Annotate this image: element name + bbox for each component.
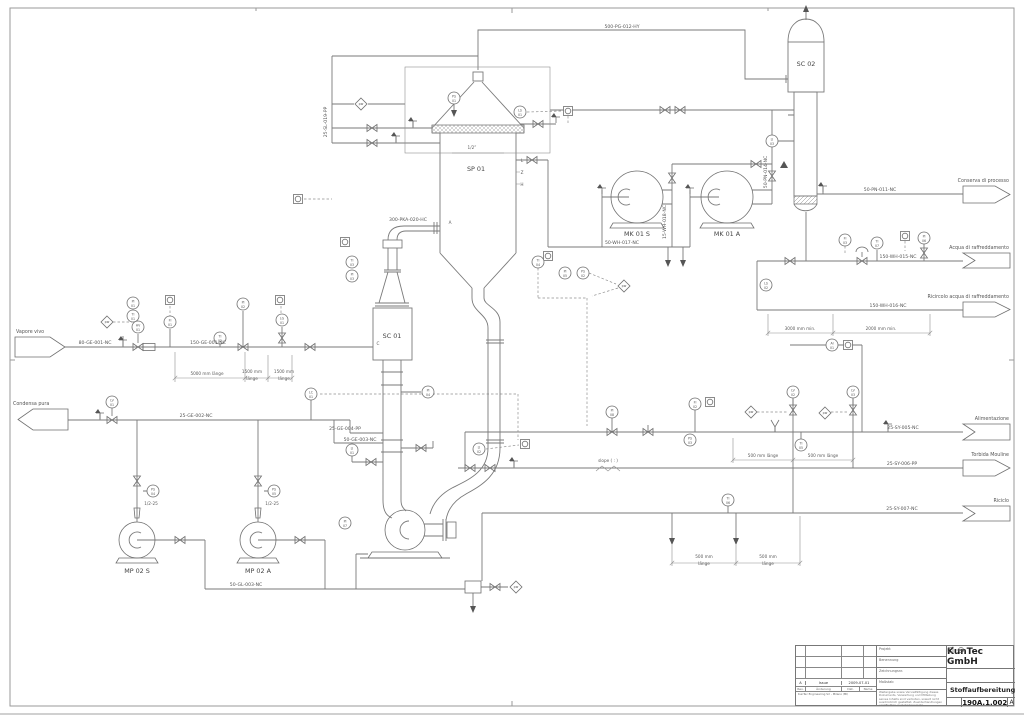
instrument-tag: PI xyxy=(344,520,347,524)
valves xyxy=(107,107,928,591)
drawing-title: Stoffaufbereitung xyxy=(947,683,1015,698)
flow-arrow-down-icon xyxy=(669,538,675,545)
pid-canvas: Vapore vivoCondensa puraConserva di proc… xyxy=(0,0,1024,724)
equipment-label: MP 02 S xyxy=(124,567,150,575)
instrument-tag: pw xyxy=(749,410,754,414)
rev-desc: Issue xyxy=(806,681,842,685)
instrument-tag: 04 xyxy=(536,263,540,267)
instrument-tag: 03 xyxy=(851,393,855,397)
vent-tee-icon xyxy=(409,121,417,127)
flag-condensa-pura xyxy=(18,409,68,430)
instrument-tag: PS xyxy=(688,437,692,441)
instrument-tag: 03 xyxy=(350,277,354,281)
flow-arrow-down-icon xyxy=(451,110,457,117)
note-label: H xyxy=(520,182,523,187)
note-label: Z xyxy=(521,170,524,175)
instrument-tag: 01 xyxy=(309,395,313,399)
instrument-tag: 04 xyxy=(426,393,430,397)
valve-actuator-icon xyxy=(112,247,868,416)
instrument-tag: 03 xyxy=(770,142,774,146)
instrument-tag: pw xyxy=(622,284,627,288)
instrument-tag: FI xyxy=(844,237,847,241)
sp01-mesh-screen xyxy=(432,125,524,133)
instrument-tag: pw xyxy=(105,320,110,324)
vent-flag-icon xyxy=(391,132,397,136)
equipment-label: MK 01 A xyxy=(714,230,741,238)
instrument-tag: 05 xyxy=(799,446,803,450)
pipe-label: 50-PN-014-NC xyxy=(763,156,769,188)
note-label: 1/2” xyxy=(468,145,477,150)
pipe-label: 300-PKA-020-HC xyxy=(389,217,427,223)
dimension-label: 1500 mm xyxy=(242,369,262,374)
rev-letter: A xyxy=(796,681,806,685)
offpage-flags: Vapore vivoCondensa puraConserva di proc… xyxy=(13,178,1010,521)
vent-flag-icon xyxy=(509,457,515,461)
instrument-tag: 02 xyxy=(581,274,585,278)
vent-flag-icon xyxy=(95,409,101,413)
drawing-frame xyxy=(0,8,1024,714)
pipe-label: 50-WH-017-NC xyxy=(605,240,639,246)
dimension-label: 500 mm xyxy=(759,554,776,559)
instrument-tag: PS xyxy=(151,488,155,492)
vent-tee-icon xyxy=(598,188,606,194)
instrument-tag: TI xyxy=(218,335,222,339)
instrument-tag: TI xyxy=(799,442,803,446)
instrument-tag: 07 xyxy=(875,244,879,248)
pipe-label: 25-SY-006-PP xyxy=(887,461,918,467)
vent-flag-icon xyxy=(818,182,824,186)
equipment-label: MK 01 S xyxy=(624,230,650,238)
flow-arrow-down-icon xyxy=(680,260,686,267)
instrument-tag: PI xyxy=(923,235,926,239)
pipe-label: 15-WH-018-NC xyxy=(662,205,668,239)
circulation-pump xyxy=(385,510,425,550)
pipe-label: 25-SL-019-PP xyxy=(323,107,329,138)
flag-label: Acqua di raffreddamento xyxy=(949,245,1009,251)
instrument-tag: TI xyxy=(350,259,354,263)
pipe-label: 25-SY-005-NC xyxy=(887,425,918,431)
instrument-tag: PI xyxy=(132,300,135,304)
instrument-tag: PS xyxy=(272,488,276,492)
flow-arrow-down-icon xyxy=(665,260,671,267)
instrument-tag: PS xyxy=(452,95,456,99)
dimension-label: 500 mm länge xyxy=(808,453,839,458)
instrument-tag: pw xyxy=(514,585,519,589)
pipe-label: 150-GE-001-NC xyxy=(190,340,226,346)
note-label: A xyxy=(449,220,452,225)
revision-table: A Issue 2009-07-01 Rev. Änderung Dat. Na… xyxy=(796,646,876,705)
revision-row: A Issue 2009-07-01 xyxy=(796,679,876,687)
dimension-label: länge xyxy=(246,376,258,381)
vent-tee-icon xyxy=(510,461,518,467)
note-label: C xyxy=(377,341,380,346)
flag-alimentazione xyxy=(963,424,1010,440)
instrument-tag: TI xyxy=(875,240,879,244)
instrument-tag: FI xyxy=(694,401,697,405)
flag-conserva-di-processo xyxy=(963,186,1010,203)
instrument-tag: 06 xyxy=(726,501,730,505)
instrument-tag: TI xyxy=(536,259,540,263)
pipe-label: 50-PN-011-NC xyxy=(864,187,896,193)
equipment-outlines xyxy=(116,19,824,563)
vent-tee-icon xyxy=(819,186,827,192)
equipment-label: MP 02 A xyxy=(245,567,272,575)
rev-head-name: Name xyxy=(860,687,876,691)
pipe-label: 25-SY-007-NC xyxy=(886,506,917,512)
instrument-tag: 04 xyxy=(151,492,155,496)
field-zeichnungsnr: Zeichnungsnr. xyxy=(877,668,946,679)
proprietary-note: Weitergabe sowie Vervielfältigung dieses… xyxy=(877,690,946,707)
dimension-label: 2000 mm min. xyxy=(866,326,897,331)
instrument-tag: 01 xyxy=(110,403,114,407)
vent-flag-icon xyxy=(883,420,889,424)
vent-flag-icon xyxy=(551,113,557,117)
instrument-tag: 03 xyxy=(350,263,354,267)
vent-tee-icon xyxy=(96,413,104,419)
signal-lines xyxy=(113,111,905,449)
process-piping xyxy=(65,10,963,606)
rev-head-date: Dat. xyxy=(842,687,860,691)
equipment-label: SP 01 xyxy=(467,165,485,173)
vessel-sc02-column xyxy=(794,92,817,196)
instrument-tag: 07 xyxy=(343,524,347,528)
drawing-revision: A xyxy=(1007,698,1015,707)
note-label: slope ( : ) xyxy=(598,458,618,463)
rev-date: 2009-07-01 xyxy=(842,681,876,685)
flag-label: Riciclo xyxy=(993,498,1009,504)
instrument-tag: PI xyxy=(611,409,614,413)
pipe-label: 25-GE-004-PP xyxy=(329,426,361,432)
projection-symbol-icon xyxy=(947,698,962,707)
flow-arrow-down-icon xyxy=(733,538,739,545)
pipe-label: 50-GL-003-NC xyxy=(230,582,262,588)
instrument-tag: pw xyxy=(823,411,828,415)
drawing-number: 190A.1.002 xyxy=(962,698,1007,707)
vent-tee-icon xyxy=(686,188,694,194)
instrument-tag: PS xyxy=(581,270,585,274)
instrument-tag: 08 xyxy=(610,413,614,417)
instrument-tag: 01 xyxy=(518,113,522,117)
instrument-tag: LS xyxy=(518,109,522,113)
title-block-footer: KunTec Engineering Srl - Milano (MI) xyxy=(796,692,876,696)
instrument-tag: 01 xyxy=(350,451,354,455)
title-block-fields: Projekt Benennung Zeichnungsnr. Maßstab … xyxy=(876,646,946,705)
instrument-tag: 05 xyxy=(272,492,276,496)
dimension-label: 5000 mm länge xyxy=(190,371,224,376)
dimension-label: länge xyxy=(278,376,290,381)
vent-tee-icon xyxy=(392,136,400,142)
instrument-tag: PI xyxy=(242,301,245,305)
rev-head-change: Änderung xyxy=(806,687,842,691)
dimension-lines xyxy=(173,153,932,566)
instrument-tag: 05 xyxy=(563,274,567,278)
note-label: 1/2-25 xyxy=(144,501,158,506)
vent-tee-icon xyxy=(119,340,127,346)
flag-ricircolo-acqua xyxy=(963,302,1010,317)
dimension-label: 3000 mm min. xyxy=(785,326,816,331)
package-boundary-sp01 xyxy=(405,67,550,153)
pid-drawing-sheet: Vapore vivoCondensa puraConserva di proc… xyxy=(0,0,1024,724)
instrument-tag: 01 xyxy=(131,317,135,321)
instrument-tag: pw xyxy=(359,102,364,106)
flag-label: Conserva di processo xyxy=(958,178,1009,184)
sample-funnel-icon xyxy=(771,420,779,432)
instrument-tag: 01 xyxy=(452,99,456,103)
instrument-tag: 03 xyxy=(843,241,847,245)
instrument-tag: 01 xyxy=(136,328,140,332)
dimension-label: 500 mm xyxy=(695,554,712,559)
instrument-tag: TI xyxy=(726,497,730,501)
instrument-tag: 02 xyxy=(693,405,697,409)
note-label: 1/2-25 xyxy=(265,501,279,506)
vent-flag-icon xyxy=(685,184,691,188)
flag-riciclo xyxy=(963,506,1010,521)
instrument-tag: 01 xyxy=(168,323,172,327)
flag-acqua-di-raffreddamento xyxy=(963,253,1010,268)
instrument-tag: PI xyxy=(351,273,354,277)
pipe-label: 25-GE-002-NC xyxy=(180,413,213,419)
instrument-tag: AI xyxy=(830,342,833,346)
instrument-tag: 02 xyxy=(241,305,245,309)
equipment-label: SC 02 xyxy=(797,60,816,68)
instrument-tag: 06 xyxy=(922,239,926,243)
instrument-tag: PI xyxy=(427,389,430,393)
vent-flag-icon xyxy=(597,184,603,188)
instrument-tag: LI xyxy=(478,446,481,450)
instrument-tag: 02 xyxy=(477,450,481,454)
instrument-tag: LI xyxy=(351,447,354,451)
field-benennung: Benennung xyxy=(877,657,946,668)
instrument-tag: 02 xyxy=(764,286,768,290)
instrument-tag: PI xyxy=(564,270,567,274)
equipment-label: SC 01 xyxy=(383,332,402,340)
title-block: A Issue 2009-07-01 Rev. Änderung Dat. Na… xyxy=(795,645,1014,706)
instrument-tag: 03 xyxy=(688,441,692,445)
flag-label: Vapore vivo xyxy=(16,329,44,335)
instrument-tag: LS xyxy=(764,282,768,286)
pipe-label: 150-WH-016-NC xyxy=(870,303,907,309)
instrument-tag: LG xyxy=(280,317,285,321)
flag-vapore-vivo xyxy=(15,337,65,357)
pipe-label: 500-PG-012-HY xyxy=(604,24,639,30)
instrument-tag: 01 xyxy=(830,346,834,350)
instrument-tag: 02 xyxy=(791,393,795,397)
vent-tee-icon xyxy=(552,117,560,123)
dimension-label: 500 mm länge xyxy=(748,453,779,458)
field-projekt: Projekt xyxy=(877,646,946,657)
flag-torbida-mouline xyxy=(963,460,1010,476)
field-massstab: Maßstab xyxy=(877,679,946,690)
pipe-label: 50-GE-003-NC xyxy=(344,437,377,443)
dimension-label: 1500 mm xyxy=(274,369,294,374)
pipe-label: 150-WH-015-NC xyxy=(880,254,917,260)
instrument-tag: 01 xyxy=(280,321,284,325)
dimension-label: länge xyxy=(762,561,774,566)
flag-label: Ricircolo acqua di raffreddamento xyxy=(928,294,1010,300)
vent-triangle xyxy=(780,161,788,168)
pipe-label: 80-GE-001-NC xyxy=(79,340,112,346)
sc02-packing-band xyxy=(794,196,817,204)
flag-label: Alimentazione xyxy=(975,416,1009,422)
instrument-tag: TI xyxy=(131,313,135,317)
dimension-label: länge xyxy=(698,561,710,566)
instrument-tag: 01 xyxy=(131,304,135,308)
vent-flag-icon xyxy=(408,117,414,121)
flag-label: Torbida Mouline xyxy=(970,452,1009,458)
instrument-tag: FI xyxy=(169,319,172,323)
note-label: L xyxy=(521,158,524,163)
flow-arrow-down-icon xyxy=(470,606,476,613)
rev-head-rev: Rev. xyxy=(796,687,806,691)
flag-label: Condensa pura xyxy=(13,401,49,407)
instrument-tag: LI xyxy=(771,138,774,142)
